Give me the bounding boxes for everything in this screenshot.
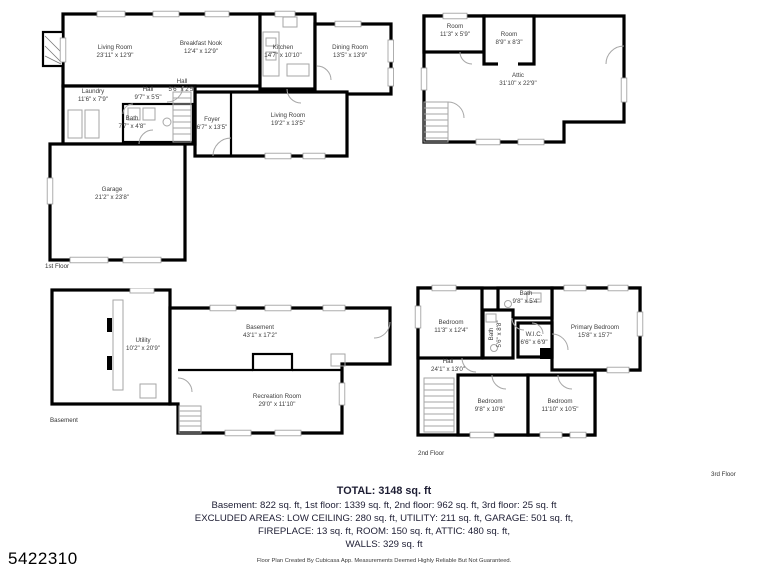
bedroom1-walls <box>418 288 482 358</box>
attic-room1-walls <box>424 16 484 52</box>
caption-third-floor: 3rd Floor <box>711 471 736 478</box>
utility-walls <box>52 290 170 404</box>
footer-disclaimer: Floor Plan Created By Cubicasa App. Meas… <box>0 558 768 564</box>
chimney-block <box>540 348 551 359</box>
foyer-living2-walls <box>195 92 347 156</box>
floor-plan-sheet: { "listing_id": "5422310", "footer_note"… <box>0 0 768 576</box>
summary-line-excluded-2: FIREPLACE: 13 sq. ft, ROOM: 150 sq. ft, … <box>0 526 768 539</box>
second-floor-drawing <box>412 282 657 442</box>
bedroom2-walls <box>458 375 528 435</box>
caption-second-floor: 2nd Floor <box>418 450 444 457</box>
first-floor-drawing <box>35 8 397 266</box>
living-breakfast-walls <box>63 14 260 86</box>
summary-line-floors: Basement: 822 sq. ft, 1st floor: 1339 sq… <box>0 500 768 513</box>
summary-line-excluded: EXCLUDED AREAS: LOW CEILING: 280 sq. ft,… <box>0 513 768 526</box>
wall-stub <box>107 318 112 332</box>
second-floor-plan: Bedroom11'3" x 12'4" Bath9'8" x 5'4" Bat… <box>412 282 657 442</box>
door-opening <box>498 61 518 66</box>
summary-line-walls: WALLS: 329 sq. ft <box>0 539 768 552</box>
basement-drawing <box>45 288 395 440</box>
listing-id: 5422310 <box>8 549 78 569</box>
vestibule-walls <box>253 354 292 370</box>
caption-basement: Basement <box>50 417 78 424</box>
third-floor-drawing <box>418 10 633 150</box>
first-floor-plan: Living Room23'11" x 12'9" Breakfast Nook… <box>35 8 397 266</box>
garage-walls <box>50 144 185 260</box>
primary-bedroom-walls <box>552 288 640 370</box>
caption-first-floor: 1st Floor <box>45 263 69 270</box>
attic-room2-walls <box>484 16 534 64</box>
wall-stub <box>107 356 112 370</box>
bath2-walls <box>483 310 513 358</box>
basement-plan: Utility10'2" x 20'9" Basement43'1" x 17'… <box>45 288 395 440</box>
summary-total: TOTAL: 3148 sq. ft <box>0 484 768 498</box>
dining-walls <box>315 24 391 94</box>
third-floor-plan: Room11'3" x 5'9" Room8'9" x 8'3" Attic31… <box>418 10 633 150</box>
area-summary: TOTAL: 3148 sq. ft Basement: 822 sq. ft,… <box>0 484 768 552</box>
